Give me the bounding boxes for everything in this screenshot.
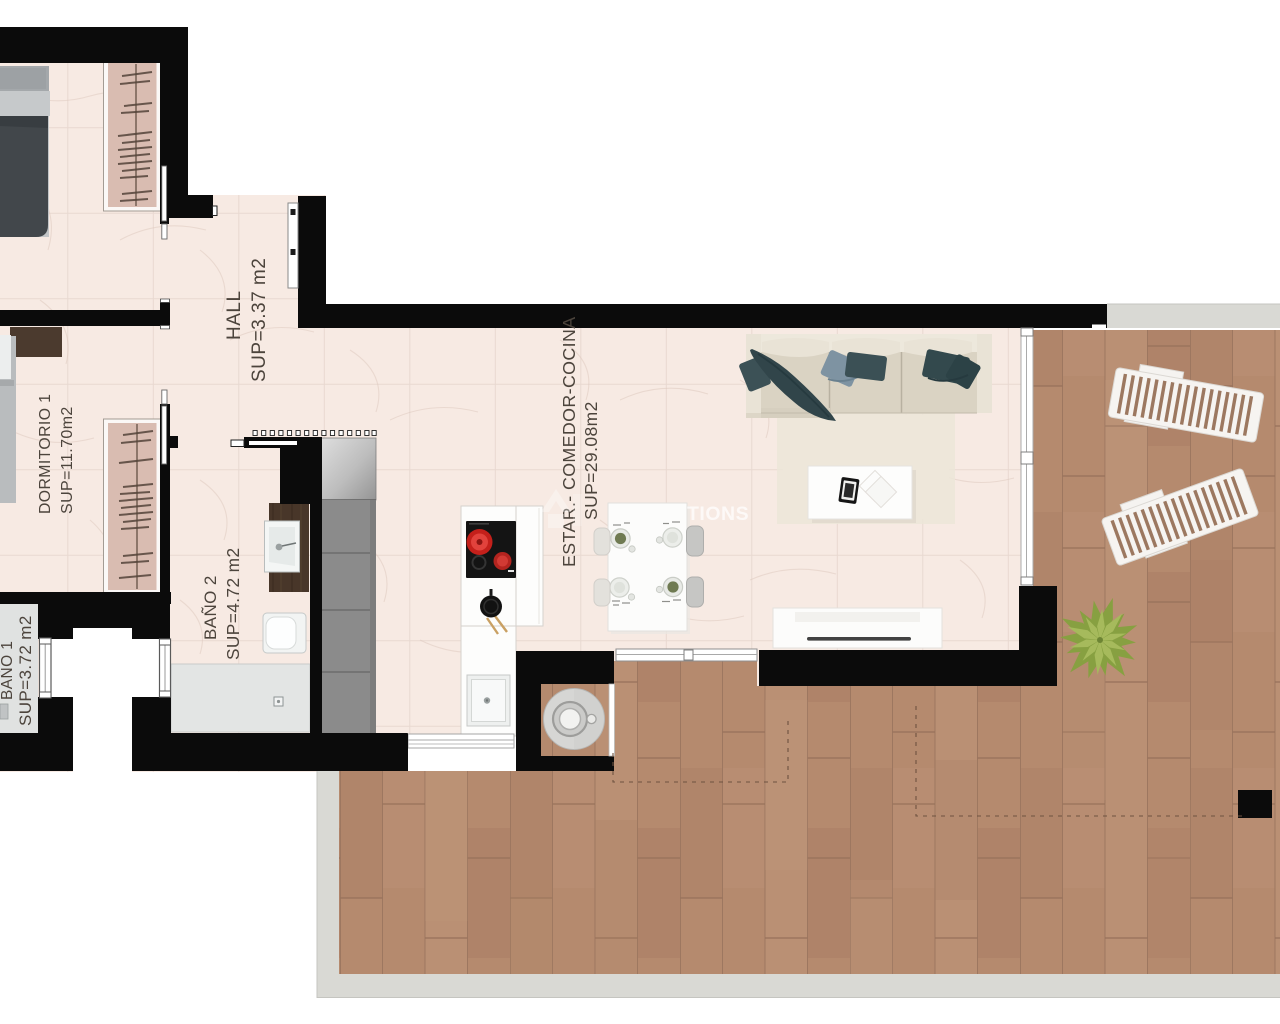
svg-text:BAÑO 1: BAÑO 1 <box>0 641 16 700</box>
svg-text:ESTAR.- COMEDOR-COCINA: ESTAR.- COMEDOR-COCINA <box>559 317 579 568</box>
svg-text:HALL: HALL <box>224 290 245 340</box>
svg-text:SUP=11.70m2: SUP=11.70m2 <box>59 406 76 514</box>
svg-text:SUP=29.08m2: SUP=29.08m2 <box>581 401 601 520</box>
svg-text:SUP=3.72 m2: SUP=3.72 m2 <box>16 615 35 726</box>
svg-text:SUP=4.72 m2: SUP=4.72 m2 <box>223 548 243 660</box>
svg-text:DORMITORIO 1: DORMITORIO 1 <box>37 394 54 514</box>
svg-text:BAÑO 2: BAÑO 2 <box>201 575 220 640</box>
svg-text:TIONS: TIONS <box>687 503 749 525</box>
svg-text:SUP=3.37 m2: SUP=3.37 m2 <box>249 258 270 382</box>
